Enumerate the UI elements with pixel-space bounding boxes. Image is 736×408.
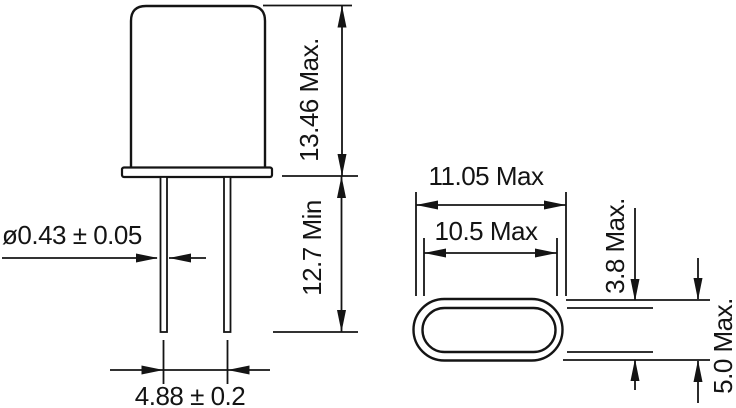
lead-spacing-label: 4.88 ± 0.2	[135, 383, 245, 408]
lead-right	[224, 177, 231, 332]
top-view-part	[414, 299, 563, 361]
arrowhead-right	[544, 201, 566, 210]
arrowhead-down	[337, 310, 346, 332]
arrowhead-right	[142, 366, 164, 375]
arrowhead-right	[535, 249, 557, 258]
arrowhead-up	[338, 6, 347, 28]
arrowhead-up	[694, 360, 703, 382]
arrowhead-left	[228, 366, 250, 375]
arrowhead-right	[136, 254, 158, 263]
outer-length-label: 11.05 Max	[429, 163, 544, 189]
arrowhead-down	[631, 279, 640, 301]
mechanical-drawing: ø0.43 ± 0.05 4.88 ± 0.2 13.46 Max. 12.7 …	[0, 0, 736, 408]
inner-length-label: 10.5 Max	[435, 218, 538, 244]
side-view-part	[122, 6, 272, 332]
arrowhead-left	[416, 201, 438, 210]
inner-width-label: 3.8 Max.	[602, 198, 628, 294]
lead-diameter-label: ø0.43 ± 0.05	[2, 222, 142, 248]
body-height-label: 13.46 Max.	[296, 38, 322, 162]
arrowhead-down	[694, 278, 703, 300]
lead-length-label: 12.7 Min	[299, 200, 325, 296]
lead-left	[161, 177, 168, 332]
arrowhead-down	[338, 154, 347, 176]
crystal-can-body	[131, 6, 265, 168]
can-base-flange	[122, 168, 272, 178]
arrowhead-left	[424, 249, 446, 258]
arrowhead-up	[631, 359, 640, 381]
arrowhead-up	[337, 176, 346, 198]
outer-width-label: 5.0 Max.	[710, 298, 736, 394]
